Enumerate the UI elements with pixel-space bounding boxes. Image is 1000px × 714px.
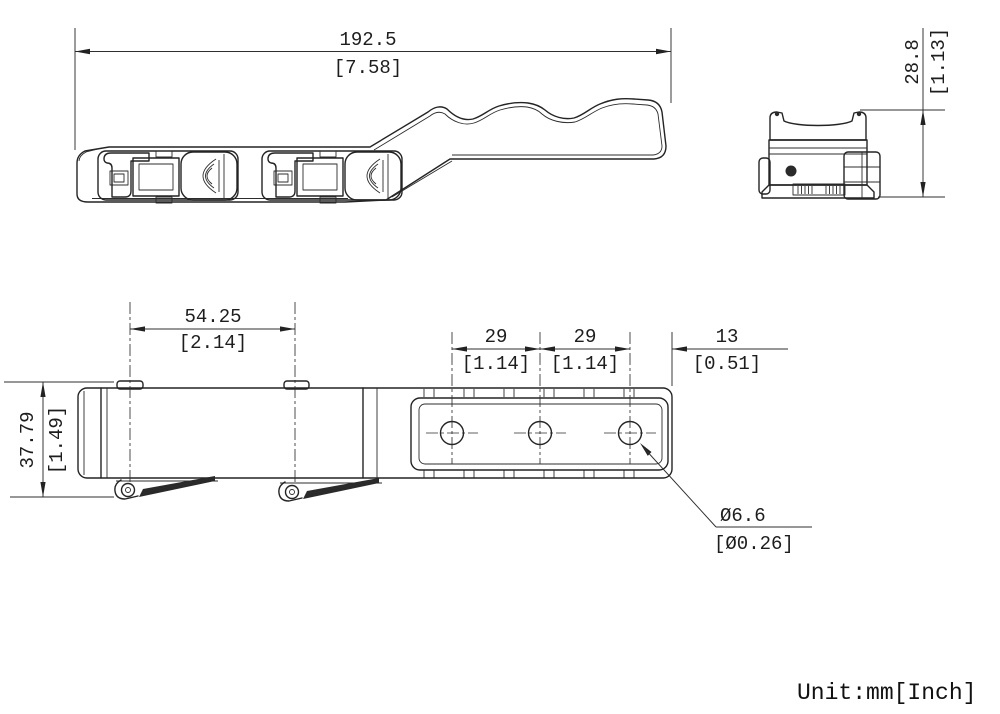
dim-side-height-mm: 28.8 xyxy=(902,39,924,85)
dim-hole-diameter-mm: Ø6.6 xyxy=(720,505,766,527)
dim-overall-width-inch: [1.49] xyxy=(46,406,68,474)
dim-overall-width-mm: 37.79 xyxy=(17,411,39,468)
dim-side-height-inch: [1.13] xyxy=(928,28,950,96)
rail-clamp-2 xyxy=(262,151,402,203)
dimension-graphics xyxy=(4,28,945,527)
unit-note: Unit:mm[Inch] xyxy=(797,680,976,706)
adjustment-screw xyxy=(786,166,797,177)
drawing-sheet: 192.5 [7.58] 28.8 [1.13] 54.25 [2.14] 29… xyxy=(0,0,1000,714)
rail-clamp-1 xyxy=(98,151,238,203)
dimension-text: 192.5 [7.58] 28.8 [1.13] 54.25 [2.14] 29… xyxy=(17,28,976,706)
technical-drawing-canvas: 192.5 [7.58] 28.8 [1.13] 54.25 [2.14] 29… xyxy=(0,0,1000,714)
dim-lug-spacing-inch: [2.14] xyxy=(179,332,247,354)
dim-overall-length-mm: 192.5 xyxy=(339,29,396,51)
end-view xyxy=(759,112,880,199)
dim-overall-length-inch: [7.58] xyxy=(334,57,402,79)
side-view xyxy=(77,99,666,203)
dim-end-offset-mm: 13 xyxy=(716,326,739,348)
latch-lever-2 xyxy=(279,478,382,501)
dim-hole-pitch-b-mm: 29 xyxy=(574,326,597,348)
dim-hole-pitch-b-inch: [1.14] xyxy=(551,353,619,375)
dim-hole-pitch-a-inch: [1.14] xyxy=(462,353,530,375)
dim-hole-pitch-a-mm: 29 xyxy=(485,326,508,348)
bottom-view xyxy=(78,381,672,501)
dim-hole-diameter-inch: [Ø0.26] xyxy=(714,533,794,555)
dim-lug-spacing-mm: 54.25 xyxy=(184,306,241,328)
dim-end-offset-inch: [0.51] xyxy=(693,353,761,375)
